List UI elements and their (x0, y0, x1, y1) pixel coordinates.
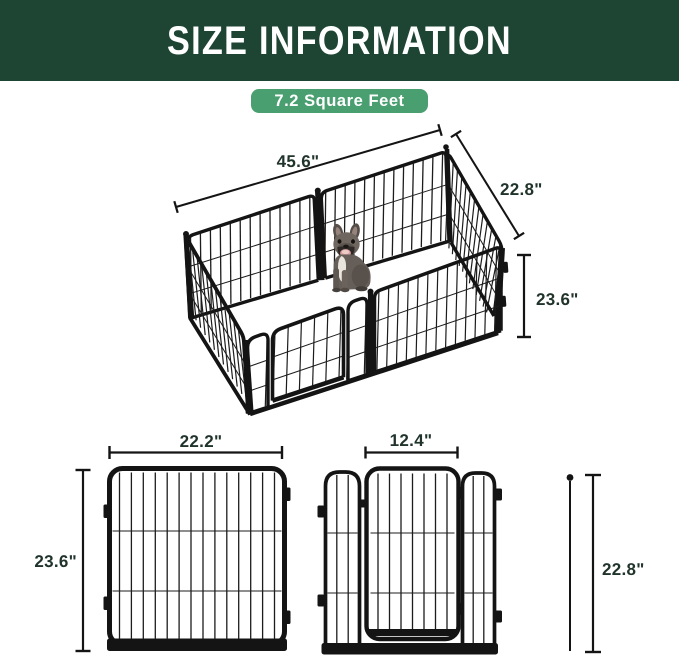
svg-text:22.8": 22.8" (602, 560, 645, 579)
svg-text:22.8": 22.8" (500, 180, 543, 199)
svg-text:12.4": 12.4" (390, 431, 433, 450)
svg-text:23.6": 23.6" (34, 552, 77, 571)
svg-text:45.6": 45.6" (277, 152, 320, 171)
svg-text:22.2": 22.2" (180, 432, 223, 451)
svg-text:23.6": 23.6" (536, 290, 579, 309)
